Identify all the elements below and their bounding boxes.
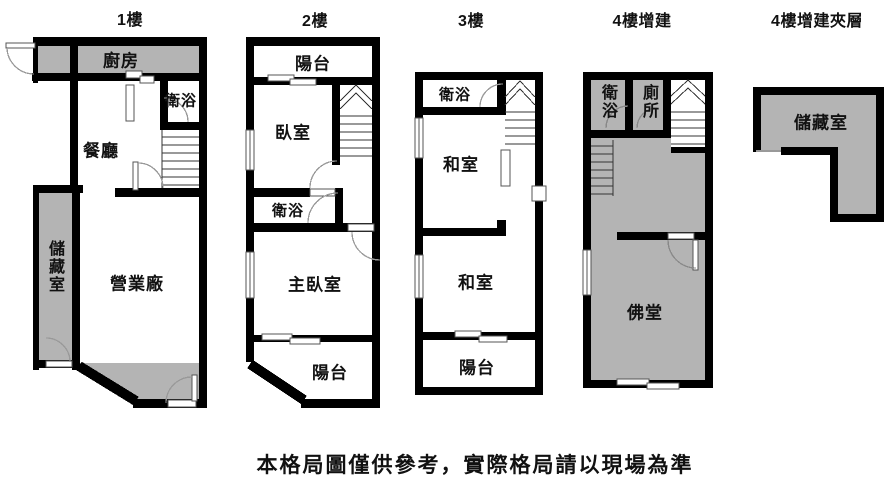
- floor-2-stairs-icon: [340, 85, 372, 156]
- floor-2-title: 2樓: [302, 7, 328, 31]
- room-label-bathroom-4f: 衛浴: [595, 84, 619, 120]
- room-label-toilet-4f: 廁所: [636, 84, 660, 120]
- floor-4-title: 4樓增建: [613, 7, 672, 31]
- floor-2-doors: [308, 161, 380, 260]
- floor-3-stairs-icon: [505, 81, 535, 144]
- room-label-balcony-rear-2f: 陽台: [312, 359, 348, 384]
- room-label-tatami-upper: 和室: [443, 151, 479, 176]
- room-label-storage-1f: 儲藏室: [42, 240, 66, 294]
- floor-4-mezzanine-plan: [753, 87, 884, 222]
- floor-1-stairs-icon: [162, 130, 199, 188]
- floor-2-windows: [246, 75, 374, 344]
- room-label-tatami-lower: 和室: [458, 269, 494, 294]
- disclaimer-caption: 本格局圖僅供參考，實際格局請以現場為準: [257, 449, 694, 479]
- room-label-kitchen: 廚房: [103, 47, 139, 72]
- room-label-dining: 餐廳: [83, 137, 119, 162]
- room-label-master-bedroom: 主臥室: [288, 271, 342, 296]
- floor-3-plan: [415, 72, 546, 395]
- floor-2-plan: [246, 37, 380, 408]
- room-label-bathroom-2f: 衛浴: [272, 200, 304, 221]
- floor-1-title: 1樓: [117, 6, 143, 30]
- floor-3-title: 3樓: [458, 7, 484, 31]
- floorplan-page: 1樓 2樓 3樓 4樓增建 4樓增建夾層 廚房 衛浴 餐廳 儲藏室 營業廠 陽台…: [0, 0, 889, 481]
- room-label-balcony-front-2f: 陽台: [295, 50, 331, 75]
- room-label-bedroom-2f: 臥室: [275, 119, 311, 144]
- room-label-bathroom-3f: 衛浴: [439, 84, 471, 105]
- room-label-business: 營業廠: [110, 270, 164, 295]
- floor-2-walls: [246, 37, 380, 408]
- floorplan-drawing: [0, 0, 889, 481]
- floor-4-mezzanine-title: 4樓增建夾層: [771, 7, 863, 31]
- room-label-balcony-3f: 陽台: [459, 354, 495, 379]
- room-label-bathroom-1f: 衛浴: [165, 90, 197, 111]
- room-label-storage-mezzanine: 儲藏室: [794, 109, 848, 134]
- floor-4-stairs-up-icon: [671, 80, 705, 147]
- room-label-buddhist-hall: 佛堂: [627, 299, 663, 324]
